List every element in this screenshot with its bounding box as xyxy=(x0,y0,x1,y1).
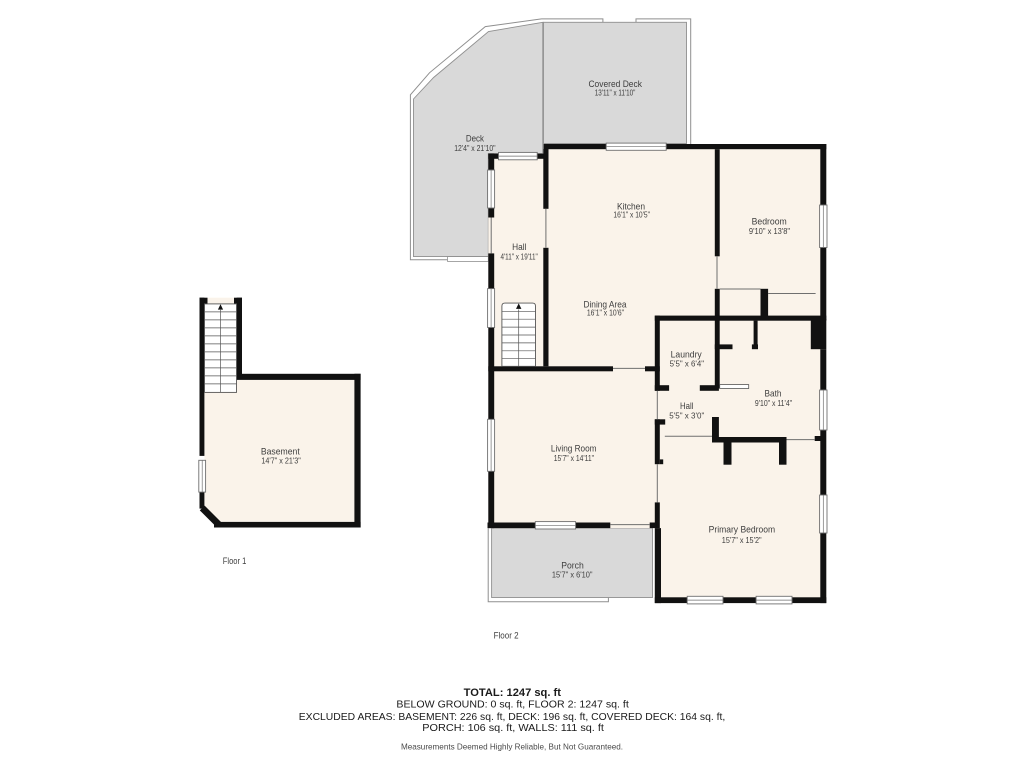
svg-text:BELOW GROUND: 0 sq. ft, FLOOR: BELOW GROUND: 0 sq. ft, FLOOR 2: 1247 sq… xyxy=(396,699,628,711)
svg-text:16'1" x 10'6": 16'1" x 10'6" xyxy=(587,308,624,318)
svg-text:9'10" x 13'8": 9'10" x 13'8" xyxy=(749,226,790,236)
svg-text:Floor 1: Floor 1 xyxy=(223,556,247,566)
svg-text:Bath: Bath xyxy=(765,389,782,399)
svg-text:Measurements Deemed Highly Rel: Measurements Deemed Highly Reliable, But… xyxy=(401,742,623,752)
svg-text:13'11" x 11'10": 13'11" x 11'10" xyxy=(595,88,636,98)
svg-text:5'5" x 6'4": 5'5" x 6'4" xyxy=(670,358,704,368)
svg-text:5'5" x 3'0": 5'5" x 3'0" xyxy=(669,410,704,420)
svg-text:16'1" x 10'5": 16'1" x 10'5" xyxy=(613,210,650,220)
svg-text:12'4" x 21'10": 12'4" x 21'10" xyxy=(454,143,495,153)
svg-text:Floor 2: Floor 2 xyxy=(494,630,519,640)
svg-text:15'7" x 14'11": 15'7" x 14'11" xyxy=(554,453,594,463)
svg-text:Hall: Hall xyxy=(512,242,526,252)
svg-text:9'10" x 11'4": 9'10" x 11'4" xyxy=(755,398,792,408)
svg-text:14'7" x 21'3": 14'7" x 21'3" xyxy=(261,456,301,466)
svg-text:TOTAL: 1247 sq. ft: TOTAL: 1247 sq. ft xyxy=(464,687,562,699)
svg-text:4'11" x 19'11": 4'11" x 19'11" xyxy=(500,252,537,262)
svg-text:PORCH: 106 sq. ft, WALLS: 111: PORCH: 106 sq. ft, WALLS: 111 sq. ft xyxy=(422,722,604,734)
svg-text:15'7" x 15'2": 15'7" x 15'2" xyxy=(722,535,762,545)
svg-text:Primary Bedroom: Primary Bedroom xyxy=(709,525,776,535)
svg-text:15'7" x 6'10": 15'7" x 6'10" xyxy=(552,570,593,580)
